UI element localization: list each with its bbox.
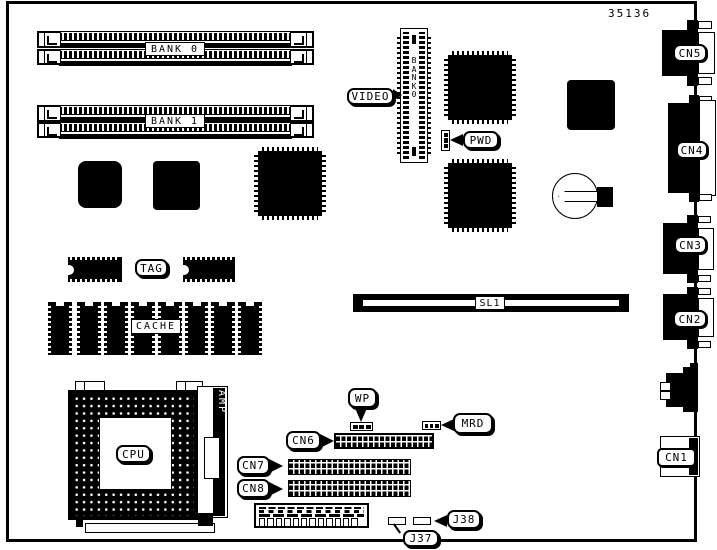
- j38-callout-pointer: [434, 515, 447, 527]
- cn5-mount-tab: [687, 76, 698, 86]
- video-slot-vertical-label: BANK0: [410, 57, 418, 100]
- cache-label: CACHE: [131, 319, 181, 334]
- simm-clip: [38, 106, 61, 121]
- cache-chip: [104, 302, 128, 355]
- simm-clip: [290, 50, 313, 64]
- cn1-label: CN1: [657, 448, 696, 467]
- pwd-callout-pointer: [450, 134, 463, 146]
- bank1-label: BANK 1: [145, 114, 205, 128]
- simm-clip: [38, 32, 61, 47]
- video-memory-slot: BANK0: [400, 28, 428, 163]
- simm-clip: [38, 50, 61, 64]
- simm-clip: [38, 123, 61, 137]
- cache-chip: [48, 302, 72, 355]
- cn4-label: CN4: [676, 141, 708, 159]
- wp-label: WP: [348, 388, 377, 408]
- tag-chip: [68, 257, 122, 282]
- amp-window: [204, 437, 220, 479]
- battery-clip: [558, 191, 598, 202]
- ic-chip: [78, 161, 122, 208]
- cn3-mount-tab-ext: [698, 216, 711, 223]
- j38-label: J38: [447, 510, 481, 529]
- cn7-header: [288, 459, 411, 475]
- amp-foot: [198, 513, 213, 526]
- cache-chip: [238, 302, 262, 355]
- cn4-mount-tab-ext: [699, 194, 712, 201]
- cn2-mount-tab-ext: [698, 288, 711, 295]
- ic-chip: [567, 80, 615, 130]
- j37-label: J37: [403, 530, 439, 547]
- pwd-label: PWD: [463, 131, 499, 149]
- video-callout-pointer: [393, 89, 402, 101]
- power-connector: [254, 503, 369, 528]
- qfp-chip: [258, 151, 322, 216]
- cpu-label: CPU: [116, 445, 151, 463]
- wp-jumper: [350, 422, 373, 431]
- cn6-label: CN6: [286, 431, 321, 450]
- tag-chip: [183, 257, 235, 282]
- battery-terminal: [597, 187, 613, 207]
- cn6-header: [334, 433, 434, 449]
- cn3-mount-tab: [687, 274, 698, 283]
- cn7-callout-pointer: [269, 459, 283, 473]
- cn2-label: CN2: [673, 310, 707, 328]
- amp-regulator: AMP: [197, 386, 228, 518]
- part-number: 35136: [608, 7, 651, 20]
- cn2-mount-tab-ext: [698, 341, 711, 348]
- keyboard-connector-pin: [660, 391, 671, 400]
- keyboard-connector-pin: [660, 382, 671, 391]
- video-label: VIDEO: [347, 88, 394, 105]
- cn5-mount-tab-ext: [698, 21, 712, 29]
- motherboard-diagram: 35136 BANK 0 BANK 1 BANK0 VIDEO: [0, 0, 717, 550]
- cn3-label: CN3: [674, 236, 707, 254]
- wp-callout-pointer: [355, 408, 367, 422]
- cn8-label: CN8: [237, 479, 270, 498]
- qfp-chip: [448, 163, 512, 228]
- j37-connector: [388, 517, 406, 525]
- simm-clip: [290, 32, 313, 47]
- pwd-jumper: [441, 130, 450, 151]
- mrd-label: MRD: [453, 413, 493, 434]
- cpu-retention-bar: [85, 523, 215, 533]
- tag-label: TAG: [135, 259, 168, 277]
- cn4-mount-tab: [689, 193, 699, 202]
- simm-clip: [290, 123, 313, 137]
- sl1-label: SL1: [475, 296, 505, 310]
- cn8-callout-pointer: [269, 482, 283, 496]
- cn8-header: [288, 480, 411, 497]
- cn3-mount-tab-ext: [698, 275, 711, 282]
- cache-chip: [185, 302, 208, 355]
- simm-clip: [290, 106, 313, 121]
- j38-connector: [413, 517, 431, 525]
- mrd-jumper: [422, 421, 441, 430]
- bank0-label: BANK 0: [145, 42, 205, 56]
- cn5-label: CN5: [673, 44, 707, 62]
- amp-label: AMP: [198, 390, 227, 414]
- cn2-mount-tab: [687, 340, 698, 349]
- cn5-mount-tab-ext: [698, 77, 712, 85]
- cache-chip: [211, 302, 235, 355]
- cache-chip: [77, 302, 101, 355]
- keyboard-connector: [683, 367, 698, 412]
- cn6-callout-pointer: [320, 434, 334, 448]
- cpu-socket-foot: [76, 519, 83, 527]
- qfp-chip: [448, 55, 512, 120]
- ic-chip: [153, 161, 200, 210]
- cn5-mount-tab: [687, 20, 698, 30]
- cn7-label: CN7: [237, 456, 270, 475]
